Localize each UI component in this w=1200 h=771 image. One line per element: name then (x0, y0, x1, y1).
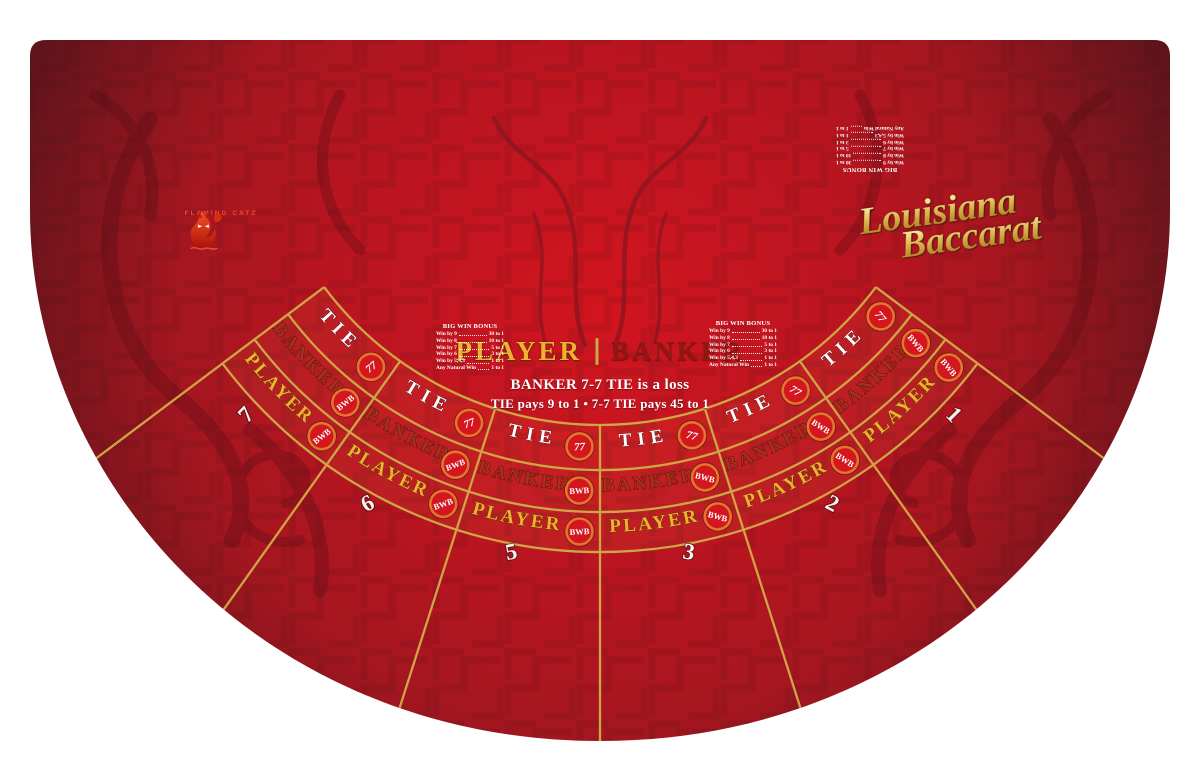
badge-label: BWB (569, 485, 590, 496)
badge-label: 77 (574, 441, 586, 454)
table-felt-canvas: TIE77BANKERBWBPLAYERBWB7TIE77BANKERBWBPL… (0, 0, 1200, 771)
badge-label: BWB (569, 526, 590, 537)
baccarat-table-layout: TIE77BANKERBWBPLAYERBWB7TIE77BANKERBWBPL… (0, 0, 1200, 771)
seat-5-player-bwb-badge[interactable]: BWB (564, 516, 594, 546)
